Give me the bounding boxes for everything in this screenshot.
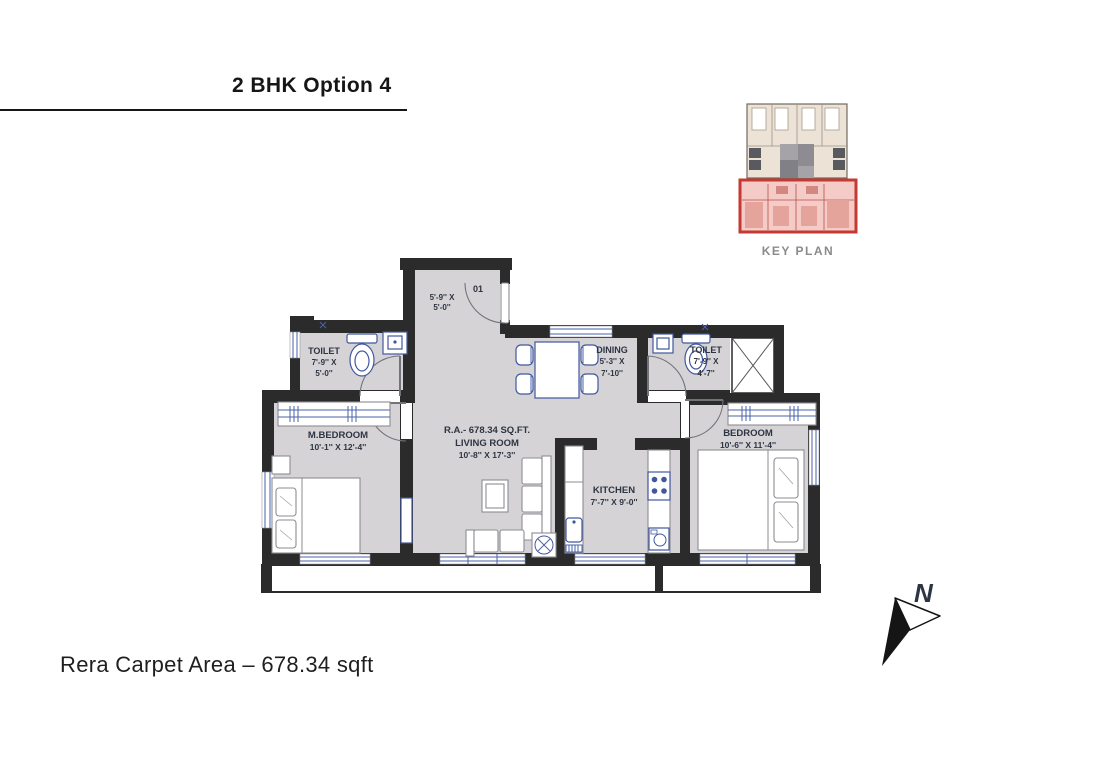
sofa-three-seat xyxy=(522,456,551,540)
title-underline xyxy=(0,109,407,111)
toilet-left-window xyxy=(290,332,300,358)
toilet-right-name: TOILET xyxy=(690,345,722,355)
page: 2 BHK Option 4 xyxy=(0,0,1117,769)
carpet-area-text: Rera Carpet Area – 678.34 sqft xyxy=(60,652,374,678)
dining-table xyxy=(535,342,579,398)
ledge xyxy=(262,565,820,592)
living-bottom-window xyxy=(440,554,525,564)
key-plan-graphic xyxy=(736,100,860,236)
dining-dim-1: 5'-3'' X xyxy=(600,357,625,366)
pillow xyxy=(276,520,296,548)
toilet-left-dim-1: 7'-9'' X xyxy=(312,358,337,367)
living-room-name: LIVING ROOM xyxy=(455,438,519,449)
appliance xyxy=(649,528,669,550)
north-arrow: N xyxy=(874,572,954,677)
foyer-dim-2: 5'-0'' xyxy=(433,303,450,312)
bedroom-bottom-window xyxy=(700,554,795,564)
faucet xyxy=(572,520,575,523)
keyplan-highlighted-unit xyxy=(740,180,856,232)
toilet-left-name: TOILET xyxy=(308,346,340,356)
bedroom-name: BEDROOM xyxy=(723,428,773,439)
dining-window xyxy=(550,326,612,337)
center-table-inner xyxy=(486,484,504,508)
keyplan-core xyxy=(780,144,814,178)
toilet-right-dim-2: 4'-7'' xyxy=(697,369,714,378)
north-label: N xyxy=(914,578,934,608)
kitchen-bottom-window xyxy=(575,554,645,564)
wc-bowl-inner xyxy=(355,351,369,371)
washbasin-inner xyxy=(657,338,669,349)
key-plan: KEY PLAN xyxy=(736,100,860,258)
bedroom-dim: 10'-6'' X 11'-4'' xyxy=(720,440,776,450)
washbasin-drain xyxy=(393,340,396,343)
side-table-fan xyxy=(532,533,556,557)
toilet-right-dim-1: 7'-9'' X xyxy=(694,357,719,366)
pillow xyxy=(276,488,296,516)
living-area-text: R.A.- 678.34 SQ.FT. xyxy=(444,425,530,436)
sofa-two-seat xyxy=(466,530,524,556)
pillow xyxy=(774,458,798,498)
toilet-left-dim-2: 5'-0'' xyxy=(315,369,332,378)
wardrobe xyxy=(278,402,390,426)
wc-tank xyxy=(682,334,710,343)
page-title: 2 BHK Option 4 xyxy=(232,74,392,98)
kitchen-counter-left xyxy=(565,446,583,553)
floor-plan: 5'-9'' X 5'-0'' 01 TOILET 7'-9'' X 5'-0'… xyxy=(250,250,830,600)
master-bedroom-dim: 10'-1'' X 12'-4'' xyxy=(310,442,367,452)
master-bedroom-name: M.BEDROOM xyxy=(308,430,368,441)
entrance-door-number: 01 xyxy=(473,284,483,294)
bed xyxy=(272,478,360,553)
bedroom-side-window xyxy=(809,430,819,485)
foyer-dim-1: 5'-9'' X xyxy=(430,293,455,302)
wc-tank xyxy=(347,334,377,343)
kitchen-counter-right xyxy=(648,450,670,553)
bed xyxy=(698,450,804,550)
living-room-dim: 10'-8'' X 17'-3'' xyxy=(459,450,516,460)
shaft xyxy=(732,338,774,393)
kitchen-dim: 7'-7'' X 9'-0'' xyxy=(590,497,637,507)
dining-dim-2: 7'-10'' xyxy=(601,369,623,378)
kitchen-name: KITCHEN xyxy=(593,485,635,496)
master-bedroom-bottom-window xyxy=(300,554,370,564)
bedside-table xyxy=(272,456,290,474)
tv-unit xyxy=(401,498,412,543)
dining-name: DINING xyxy=(596,345,628,355)
pillow xyxy=(774,502,798,542)
stove xyxy=(648,472,670,500)
wardrobe xyxy=(728,403,816,425)
